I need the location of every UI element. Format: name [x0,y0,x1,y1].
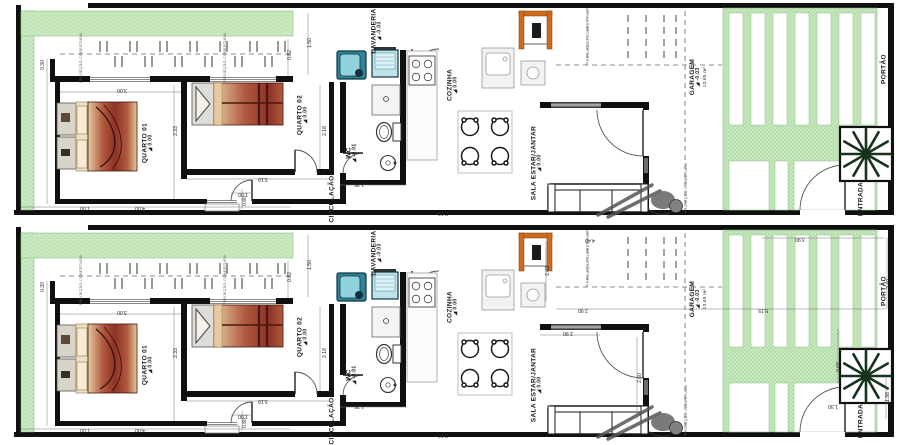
floorplan-canvas [0,0,900,445]
plan-casa-01 [14,3,894,217]
plan-casa-02 [14,225,894,439]
floorplan-page: QUARTO 01◢ 0.00QUARTO 02◢ 0.00WC◢ -0.01C… [0,0,900,445]
